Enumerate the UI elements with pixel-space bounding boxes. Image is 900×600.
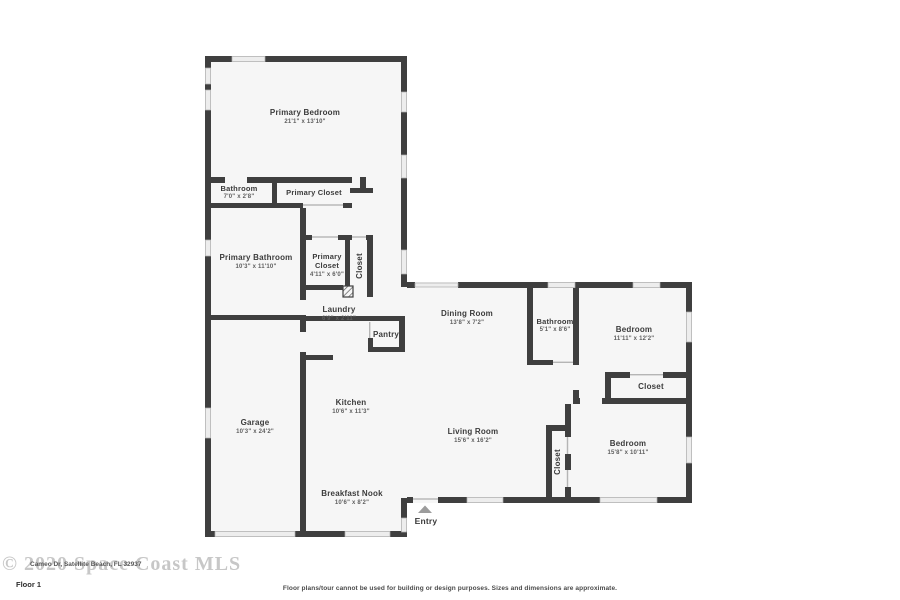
- water-heater-hatch: [343, 286, 353, 297]
- floor-area: [205, 56, 692, 537]
- entry-arrow-icon: [418, 506, 432, 514]
- disclaimer-text: Floor plans/tour cannot be used for buil…: [0, 585, 900, 592]
- property-address: Cameo Dr, Satellite Beach, FL 32937: [30, 561, 142, 568]
- floor-plan: Primary Bedroom 21'1" x 13'10" Bathroom …: [0, 0, 900, 600]
- floor-plan-drawing: [0, 0, 900, 600]
